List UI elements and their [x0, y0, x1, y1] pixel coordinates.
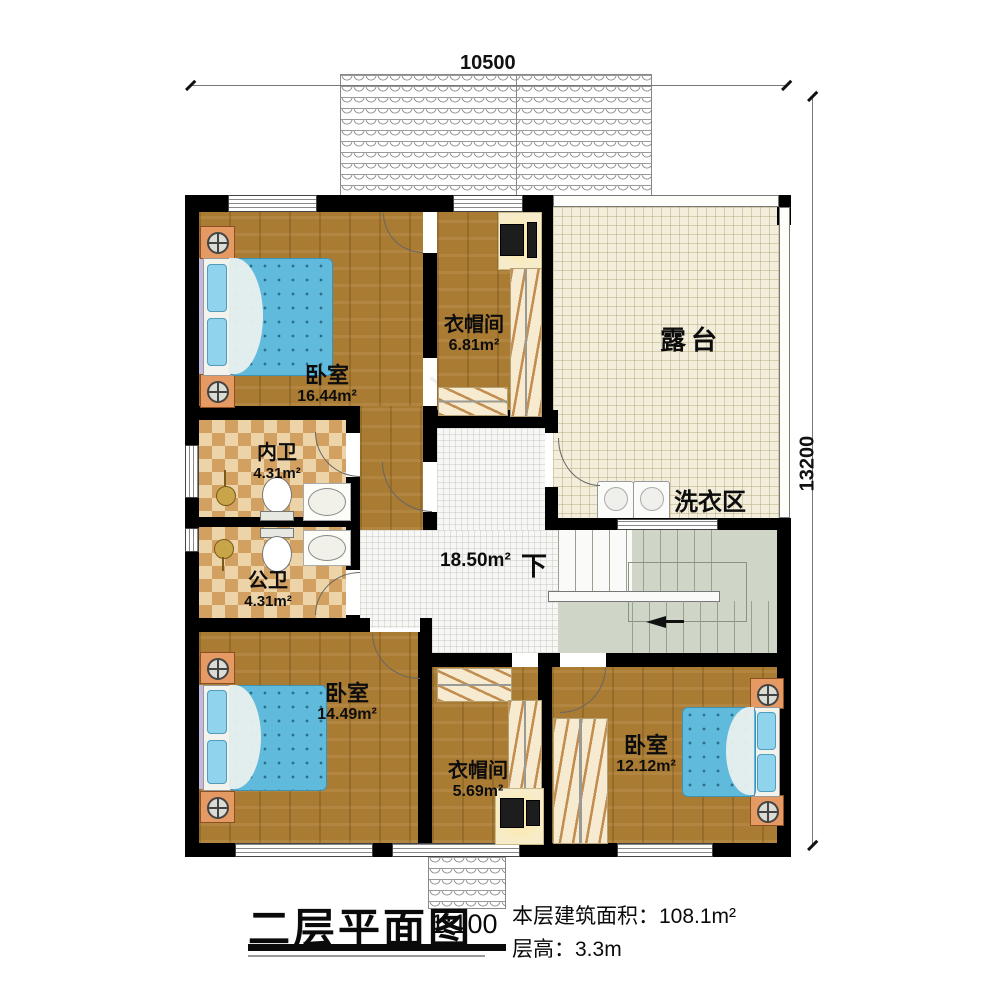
bedroom1-nightstand-bottom: [200, 374, 235, 408]
dimension-line-top: [190, 85, 787, 86]
wall-bedroom2-cloak2: [418, 632, 432, 843]
room-name: 内卫: [232, 442, 322, 465]
floor-hall-top: [437, 428, 545, 530]
bedroom3-pillow-1: [757, 712, 776, 750]
wall-terrace-hall-a: [545, 420, 558, 433]
stairs-arrow-tail: [666, 620, 684, 623]
sink-icon: [303, 483, 351, 521]
room-area: 16.44m²: [272, 388, 382, 406]
lamp-icon: [757, 801, 779, 823]
toilet-tank-icon: [260, 511, 294, 521]
floorplan-canvas: 柏 www.baij 建筑 建筑 www.baij: [0, 0, 1000, 990]
room-area: 4.31m²: [232, 465, 322, 482]
room-label-bedroom-1: 卧室 16.44m²: [272, 363, 382, 407]
dimension-height-label: 13200: [796, 436, 819, 492]
room-label-bath-inner: 内卫 4.31m²: [232, 442, 322, 482]
floor-height-value: 3.3m: [575, 938, 622, 961]
floor-height-label: 层高：: [512, 938, 575, 961]
roof-hatch-divider: [516, 74, 517, 195]
wall-vestibule-hall-upper: [423, 406, 437, 462]
bedroom1-nightstand-top: [200, 226, 235, 259]
washing-machine-1: [597, 481, 634, 520]
window-bottom-cloak2: [392, 843, 520, 857]
room-name: 卧室: [272, 363, 382, 388]
window-left-bath-public: [185, 528, 199, 552]
window-left-bath-inner: [185, 445, 199, 498]
washing-machine-2: [633, 481, 670, 520]
room-label-bedroom-2: 卧室 14.49m²: [292, 681, 402, 725]
room-name: 卧室: [596, 733, 696, 758]
stairs-landing-edge: [617, 519, 718, 530]
wall-bedroom2-top: [185, 618, 370, 632]
floor-hall-lower: [432, 628, 558, 653]
bedroom2-pillow-1: [207, 690, 227, 734]
title-underline: [248, 944, 506, 951]
bedroom2-nightstand-top: [200, 652, 235, 684]
sink-icon: [303, 530, 351, 566]
room-name: 公卫: [222, 570, 314, 593]
bedroom1-pillow-2: [207, 318, 227, 366]
laundry-label: 洗衣区: [674, 482, 746, 517]
wall-bedroom1-bath: [185, 406, 360, 420]
terrace-parapet-right: [779, 207, 790, 518]
room-label-bedroom-3: 卧室 12.12m²: [596, 733, 696, 777]
bedroom3-nightstand-bottom: [750, 795, 784, 826]
stairs-direction-arrow: [646, 616, 666, 628]
room-name: 衣帽间: [428, 314, 520, 337]
room-area: 4.31m²: [222, 593, 314, 610]
shower-head-icon: [216, 486, 236, 506]
cloak1-vase: [527, 222, 537, 258]
room-name: 衣帽间: [432, 760, 524, 783]
room-label-cloakroom-1: 衣帽间 6.81m²: [428, 314, 520, 355]
room-name: 卧室: [292, 681, 402, 706]
room-label-terrace: 露台: [648, 326, 734, 356]
plan-scale: 1:100: [430, 909, 498, 940]
cloak2-wardrobe-top: [437, 668, 512, 702]
room-area: 12.12m²: [596, 758, 696, 776]
bedroom3-nightstand-top: [750, 678, 784, 709]
stairs-down-label: 下: [521, 546, 547, 583]
cloak2-item: [526, 800, 540, 826]
floor-height-line: 层高：3.3m: [512, 934, 736, 967]
cloak1-wardrobe-bottom: [438, 387, 508, 416]
toilet-icon: [262, 477, 292, 513]
cloak1-tv: [500, 224, 524, 256]
toilet-icon: [262, 536, 292, 572]
window-bottom-bedroom2: [235, 843, 373, 857]
window-top-cloak1: [453, 195, 523, 212]
wall-bedroom3-top-a: [551, 653, 560, 667]
lamp-icon: [207, 232, 229, 254]
shower-stem-icon: [224, 470, 226, 486]
floor-area-value: 108.1m²: [659, 905, 736, 928]
room-name: 露台: [648, 326, 734, 356]
floor-area-line: 本层建筑面积：108.1m²: [512, 901, 736, 934]
wall-bedroom2-top-stub: [420, 618, 432, 632]
plan-info: 本层建筑面积：108.1m² 层高：3.3m: [512, 901, 736, 966]
wall-vestibule-hall-lower: [423, 512, 437, 530]
bedroom2-nightstand-bottom: [200, 791, 235, 823]
wall-terrace-hall-b: [545, 487, 558, 530]
lamp-icon: [207, 797, 229, 819]
shower-stem-icon: [222, 557, 224, 571]
room-area: 5.69m²: [432, 783, 524, 801]
wall-bedroom3-top-b: [606, 653, 791, 667]
room-label-cloakroom-2: 衣帽间 5.69m²: [432, 760, 524, 801]
window-top-bedroom1: [228, 195, 317, 212]
bedroom1-pillow-1: [207, 264, 227, 312]
lamp-icon: [757, 684, 779, 706]
sink-basin-icon: [308, 535, 346, 561]
hall-area-label: 18.50m²: [440, 550, 511, 572]
dimension-width-label: 10500: [460, 52, 516, 75]
lamp-icon: [207, 658, 229, 680]
terrace-parapet-top: [553, 195, 779, 207]
floor-area-label: 本层建筑面积：: [512, 905, 659, 928]
room-area: 6.81m²: [428, 337, 520, 355]
lamp-icon: [207, 381, 229, 403]
washer-drum-icon: [604, 487, 628, 511]
roof-hatch-top: [340, 74, 652, 197]
cloak2-dresser: [500, 798, 524, 828]
bedroom2-pillow-2: [207, 740, 227, 784]
bedroom3-pillow-2: [757, 754, 776, 792]
sink-basin-icon: [308, 488, 346, 516]
room-area: 14.49m²: [292, 706, 402, 724]
wall-cloak2-top: [432, 653, 512, 667]
shower-head-icon: [214, 539, 234, 559]
title-underline-thin: [248, 955, 485, 957]
washer-drum-icon: [640, 487, 664, 511]
window-bottom-bedroom3: [617, 843, 713, 857]
room-label-bath-public: 公卫 4.31m²: [222, 570, 314, 610]
